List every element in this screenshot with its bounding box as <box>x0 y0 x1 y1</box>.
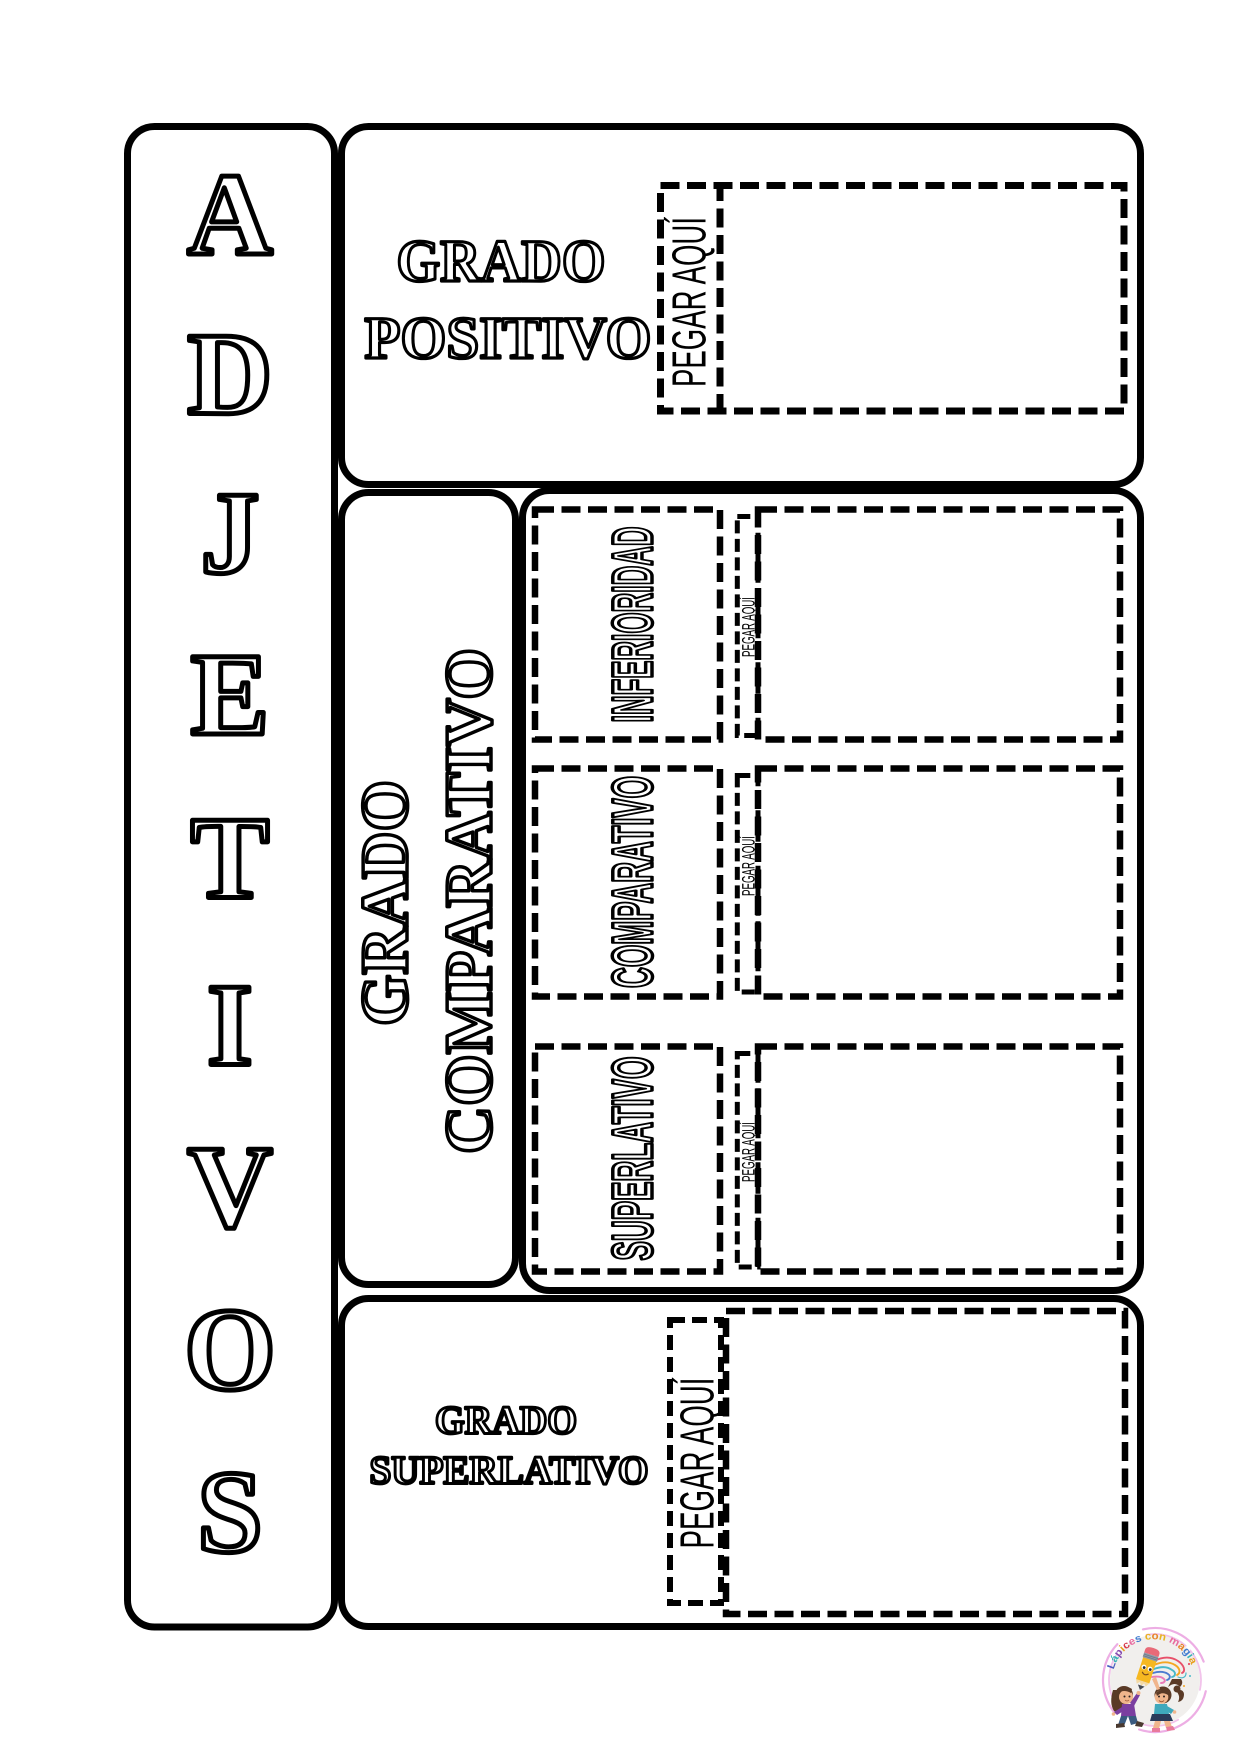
svg-text:SUPERLATIVO: SUPERLATIVO <box>601 1057 665 1261</box>
svg-text:POSITIVO: POSITIVO <box>365 305 652 371</box>
svg-text:I: I <box>207 960 253 1091</box>
svg-text:J: J <box>201 468 260 599</box>
svg-text:SUPERLATIVO: SUPERLATIVO <box>370 1448 649 1493</box>
svg-text:PEGAR AQUÍ: PEGAR AQUÍ <box>739 1122 759 1182</box>
svg-text:PEGAR AQUÍ: PEGAR AQUÍ <box>739 836 759 896</box>
svg-text:PEGAR AQUÍ: PEGAR AQUÍ <box>672 1377 725 1548</box>
svg-text:INFERIORIDAD: INFERIORIDAD <box>601 527 665 723</box>
svg-text:T: T <box>191 793 270 924</box>
svg-text:COMPARATIVO: COMPARATIVO <box>601 776 665 988</box>
svg-text:D: D <box>187 309 272 440</box>
svg-text:GRADO: GRADO <box>348 780 422 1026</box>
svg-text:GRADO: GRADO <box>397 228 606 294</box>
svg-text:O: O <box>184 1284 276 1415</box>
svg-text:COMPARATIVO: COMPARATIVO <box>432 648 506 1154</box>
svg-text:A: A <box>187 149 272 280</box>
svg-text:PEGAR AQUÍ: PEGAR AQUÍ <box>664 217 717 387</box>
svg-text:V: V <box>187 1122 272 1253</box>
svg-text:E: E <box>191 629 270 760</box>
svg-text:PEGAR AQUÍ: PEGAR AQUÍ <box>739 597 759 657</box>
svg-text:S: S <box>197 1447 263 1578</box>
svg-text:GRADO: GRADO <box>435 1398 577 1443</box>
